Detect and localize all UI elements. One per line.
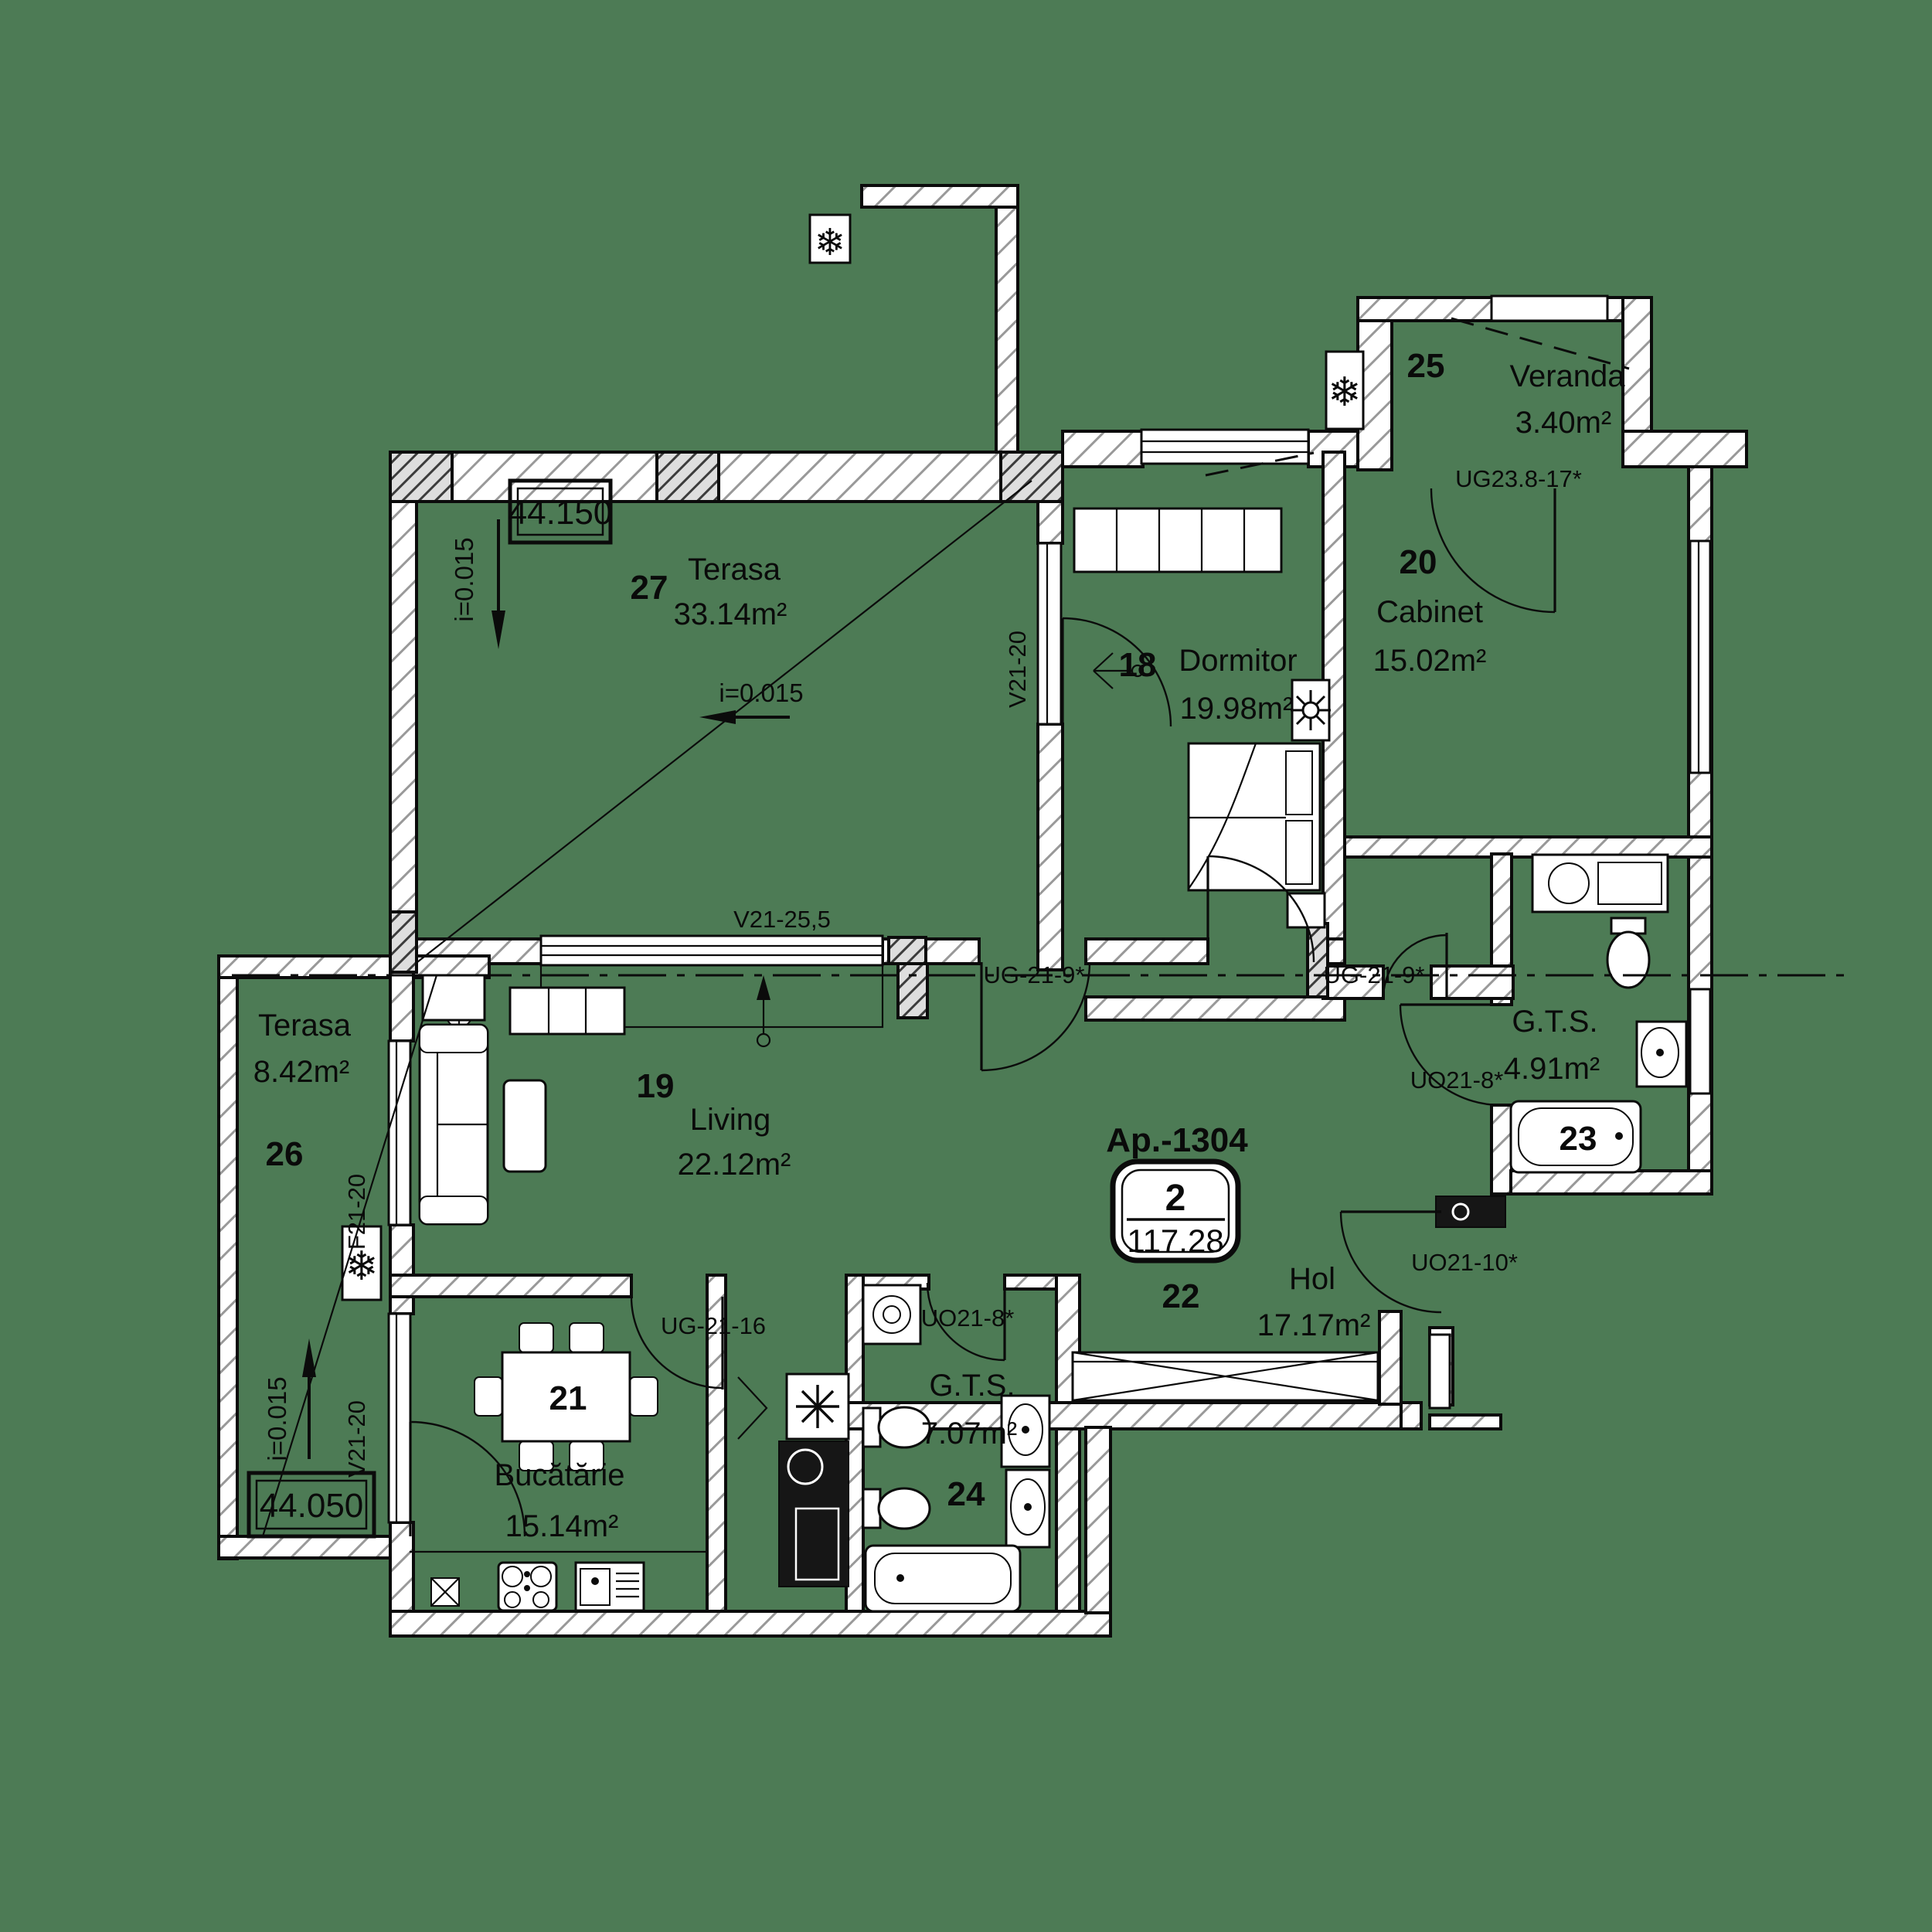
room-area-bucatarie: 15.14m²	[505, 1509, 619, 1543]
toilet-23	[1607, 918, 1649, 988]
code-uo21-8-bath: UO21-8*	[921, 1304, 1015, 1332]
room-number-27: 27	[631, 569, 668, 607]
veranda-top-window	[1492, 296, 1607, 321]
room-number-18: 18	[1119, 646, 1157, 684]
washing-machine-24	[863, 1285, 920, 1344]
cabinet-right-window	[1690, 541, 1710, 773]
hol-right-window	[1430, 1335, 1450, 1408]
room-name-living: Living	[690, 1103, 771, 1137]
snowflake-icon: ❄	[815, 221, 845, 264]
terrace-dormitor-door-glass-v21-20	[1038, 543, 1061, 724]
wardrobe-dormitor	[1074, 509, 1281, 572]
room-number-21: 21	[549, 1379, 587, 1417]
room-area-terasa26: 8.42m²	[253, 1055, 350, 1089]
room-name-veranda: Veranda	[1509, 359, 1625, 393]
room-name-gts23: G.T.S.	[1512, 1005, 1597, 1039]
code-ug-21-16: UG-21-16	[661, 1312, 766, 1339]
bathtub-24	[866, 1546, 1020, 1611]
sink-23	[1637, 1022, 1686, 1087]
ac-unit-veranda: ❄	[1326, 352, 1363, 429]
room-name-hol: Hol	[1289, 1262, 1335, 1296]
level-upper-value: 44.150	[509, 494, 613, 532]
sink-24-b	[1006, 1470, 1049, 1547]
room-name-terasa27: Terasa	[688, 553, 781, 587]
room-area-veranda: 3.40m²	[1515, 406, 1612, 440]
room-area-terasa27: 33.14m²	[674, 597, 787, 631]
ventilation-shaft	[779, 1441, 849, 1587]
gts23-right-window	[1690, 989, 1710, 1094]
room-area-gts24: 7.07m²	[921, 1417, 1018, 1451]
room-name-gts24: G.T.S.	[929, 1369, 1015, 1403]
floor-plan-page: ❄ ❄ ❄	[0, 0, 1932, 1932]
snowflake-icon: ❄	[1328, 369, 1362, 416]
code-uo21-8-gts: UO21-8*	[1410, 1066, 1504, 1094]
toilet-24-a	[863, 1407, 930, 1447]
kitchen-west-window-v21-20	[389, 1314, 410, 1522]
room-number-25: 25	[1407, 347, 1445, 385]
sofa	[420, 975, 488, 1224]
room-number-19: 19	[637, 1067, 675, 1105]
hol-wardrobe	[1073, 1352, 1378, 1400]
kitchen-sink	[576, 1563, 644, 1611]
ac-unit-top: ❄	[810, 215, 850, 264]
sideboard-living	[510, 988, 624, 1034]
room-name-terasa26: Terasa	[258, 1009, 352, 1043]
apartment-total-area: 117.28	[1127, 1223, 1223, 1259]
code-uo21-10: UO21-10*	[1411, 1249, 1518, 1276]
apartment-rooms-count: 2	[1165, 1178, 1186, 1219]
apartment-code: Ap.-1304	[1106, 1121, 1248, 1159]
code-ug23-8-17: UG23.8-17*	[1455, 465, 1582, 492]
room-name-cabinet: Cabinet	[1376, 595, 1483, 629]
slope-terrace27-left: i=0.015	[450, 537, 478, 621]
code-ug-21-9-right: UG-21-9*	[1324, 961, 1425, 988]
apartment-badge: Ap.-1304 2 117.28	[1106, 1121, 1248, 1260]
room-area-cabinet: 15.02m²	[1373, 644, 1487, 678]
coffee-table	[504, 1080, 546, 1172]
room-name-bucatarie: Bucătărie	[495, 1458, 625, 1492]
level-lower-value: 44.050	[260, 1487, 364, 1525]
stove	[498, 1563, 556, 1611]
floor-plan-drawing: ❄ ❄ ❄	[0, 0, 1932, 1932]
room-number-22: 22	[1162, 1277, 1200, 1315]
room-area-living: 22.12m²	[678, 1148, 791, 1182]
room-area-hol: 17.17m²	[1257, 1308, 1371, 1342]
toilet-24-b	[863, 1488, 930, 1529]
room-name-dormitor: Dormitor	[1179, 644, 1297, 678]
code-v21-20-kitchen: V21-20	[343, 1400, 370, 1478]
floor-drain-icon	[431, 1578, 459, 1606]
room-number-26: 26	[266, 1135, 304, 1173]
code-v21-20-terrace: V21-20	[1004, 631, 1031, 708]
room-number-20: 20	[1400, 543, 1437, 581]
room-area-gts23: 4.91m²	[1504, 1052, 1600, 1086]
room-number-24: 24	[947, 1475, 985, 1513]
code-v21-25-5: V21-25,5	[733, 906, 831, 933]
washing-machine-23	[1532, 855, 1668, 912]
room-area-dormitor: 19.98m²	[1180, 692, 1294, 726]
code-ug-21-9-left: UG-21-9*	[984, 961, 1085, 988]
slope-terrace26: i=0.015	[263, 1376, 291, 1461]
slope-terrace27-mid: i=0.015	[719, 679, 803, 707]
code-f21-20: F21-20	[343, 1174, 370, 1250]
room-number-23: 23	[1560, 1120, 1597, 1158]
hol-vanity	[1436, 1196, 1505, 1227]
